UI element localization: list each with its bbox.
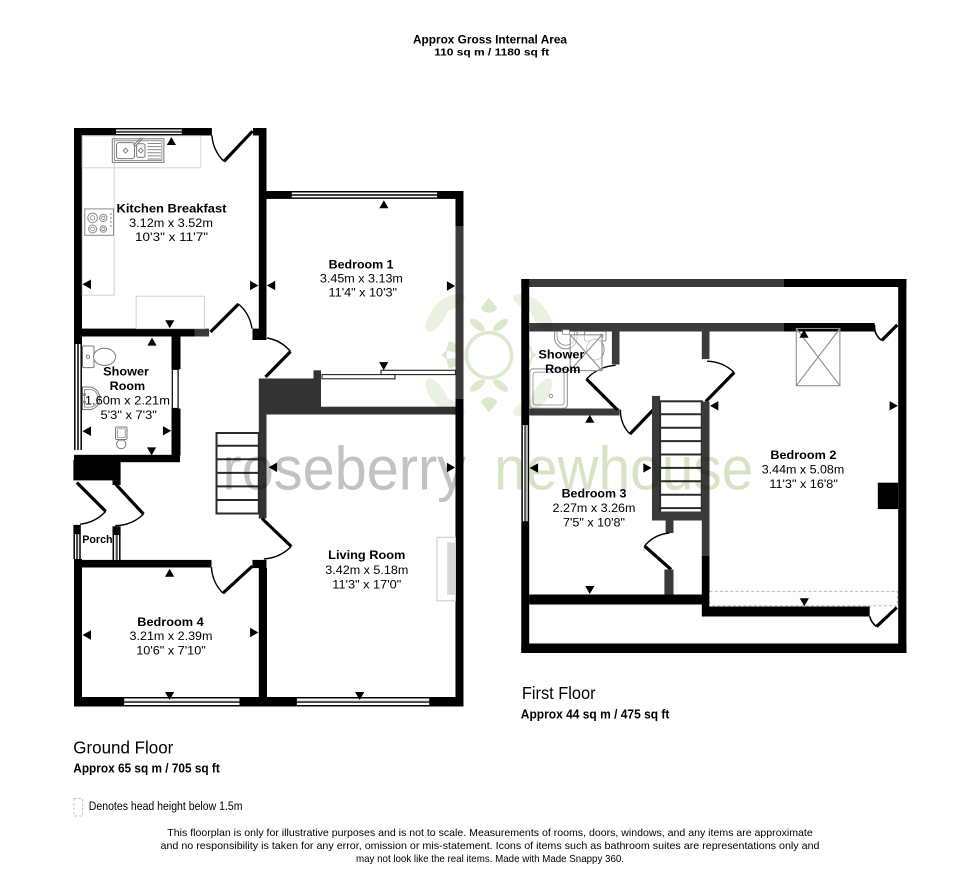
svg-text:may not look like the real ite: may not look like the real items. Made w…	[356, 854, 624, 865]
svg-text:roseberry: roseberry	[223, 435, 467, 503]
svg-text:1.60m x 2.21m: 1.60m x 2.21m	[85, 393, 170, 407]
svg-text:7'5" x 10'8": 7'5" x 10'8"	[563, 515, 625, 529]
svg-text:Ground Floor: Ground Floor	[73, 737, 173, 757]
svg-text:Bedroom 2: Bedroom 2	[770, 449, 836, 462]
svg-text:5'3" x 7'3": 5'3" x 7'3"	[101, 408, 157, 422]
svg-text:10'6" x 7'10": 10'6" x 7'10"	[136, 644, 206, 658]
svg-text:3.42m x 5.18m: 3.42m x 5.18m	[325, 563, 408, 577]
svg-text:This floorplan is only for ill: This floorplan is only for illustrative …	[167, 828, 813, 839]
svg-text:2.27m x 3.26m: 2.27m x 3.26m	[553, 501, 636, 515]
svg-text:Bedroom 4: Bedroom 4	[137, 616, 204, 629]
svg-text:Shower: Shower	[538, 349, 585, 362]
svg-text:Living Room: Living Room	[328, 549, 405, 562]
svg-text:newhouse: newhouse	[494, 435, 753, 503]
svg-text:Kitchen Breakfast: Kitchen Breakfast	[117, 202, 227, 215]
svg-text:Room: Room	[545, 363, 580, 376]
svg-text:Approx Gross Internal Area: Approx Gross Internal Area	[413, 33, 568, 46]
svg-text:and no responsibility is taken: and no responsibility is taken for any e…	[161, 841, 820, 852]
svg-text:11'4" x 10'3": 11'4" x 10'3"	[329, 285, 398, 299]
svg-text:Porch: Porch	[82, 534, 113, 546]
svg-text:3.12m x 3.52m: 3.12m x 3.52m	[129, 216, 213, 230]
svg-text:Approx 44 sq m / 475 sq ft: Approx 44 sq m / 475 sq ft	[521, 706, 670, 721]
svg-text:Bedroom 1: Bedroom 1	[329, 258, 394, 271]
svg-text:Denotes head height below 1.5m: Denotes head height below 1.5m	[89, 799, 243, 813]
svg-text:11'3" x 16'8": 11'3" x 16'8"	[769, 477, 838, 491]
svg-text:3.21m x 2.39m: 3.21m x 2.39m	[130, 629, 213, 643]
svg-text:3.44m x 5.08m: 3.44m x 5.08m	[762, 462, 845, 476]
svg-text:10'3" x 11'7": 10'3" x 11'7"	[135, 230, 208, 244]
svg-text:Approx 65 sq m / 705 sq ft: Approx 65 sq m / 705 sq ft	[73, 761, 220, 776]
svg-text:110 sq m / 1180 sq ft: 110 sq m / 1180 sq ft	[434, 48, 550, 59]
svg-text:Room: Room	[110, 380, 145, 393]
svg-text:Shower: Shower	[103, 366, 149, 379]
svg-text:11'3" x 17'0": 11'3" x 17'0"	[332, 578, 401, 592]
svg-text:First Floor: First Floor	[522, 683, 596, 703]
svg-text:3.45m x 3.13m: 3.45m x 3.13m	[320, 272, 403, 286]
